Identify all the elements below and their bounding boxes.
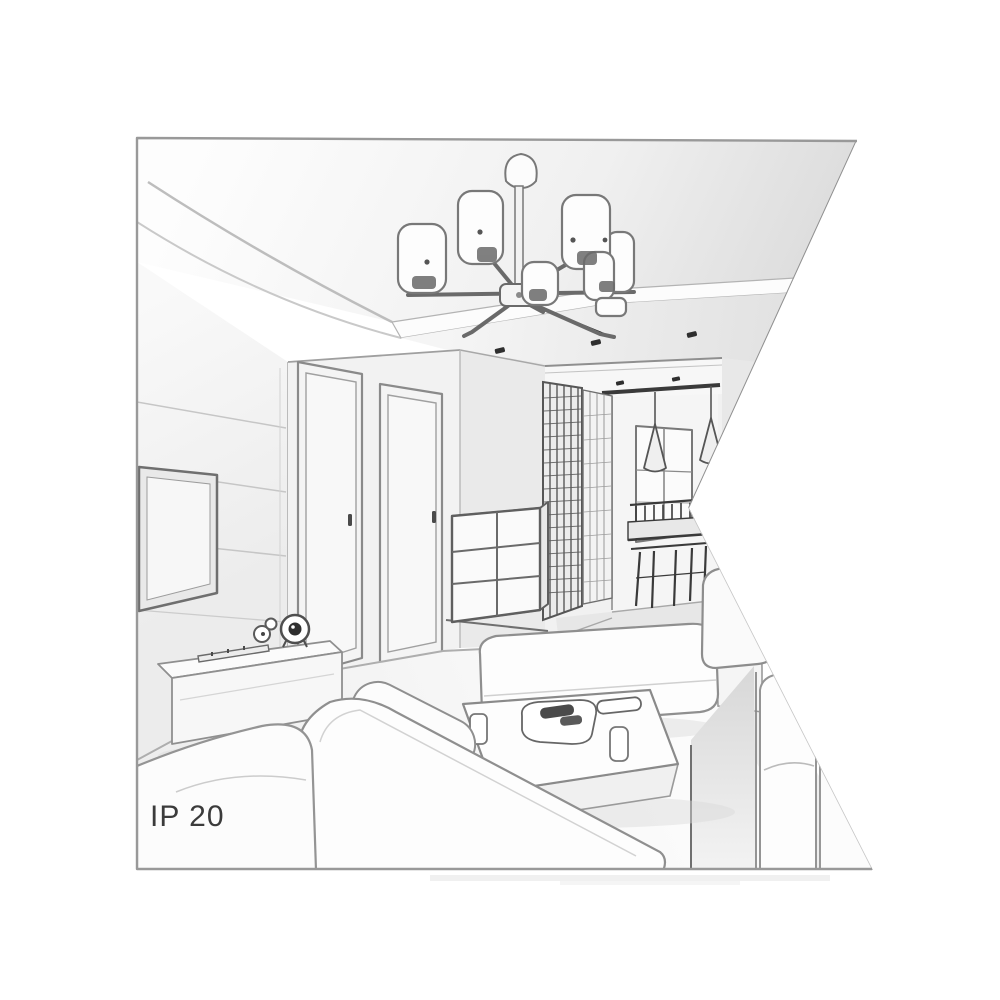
wall-mounted-tv bbox=[139, 467, 217, 611]
product-illustration: IP 20 bbox=[0, 0, 1000, 1000]
desk-clock bbox=[281, 615, 309, 647]
hall-cabinet-panel bbox=[583, 390, 612, 604]
door-handle bbox=[348, 514, 352, 526]
chandelier-canopy bbox=[505, 154, 536, 188]
drawer-chest bbox=[446, 502, 548, 631]
cup bbox=[610, 727, 628, 761]
frame-shadow bbox=[430, 875, 830, 881]
frame-shadow-soft bbox=[560, 881, 740, 885]
door-handle bbox=[432, 511, 436, 523]
room-sketch bbox=[0, 0, 1000, 1000]
ip-rating-label: IP 20 bbox=[150, 800, 225, 834]
right-door bbox=[380, 384, 442, 664]
